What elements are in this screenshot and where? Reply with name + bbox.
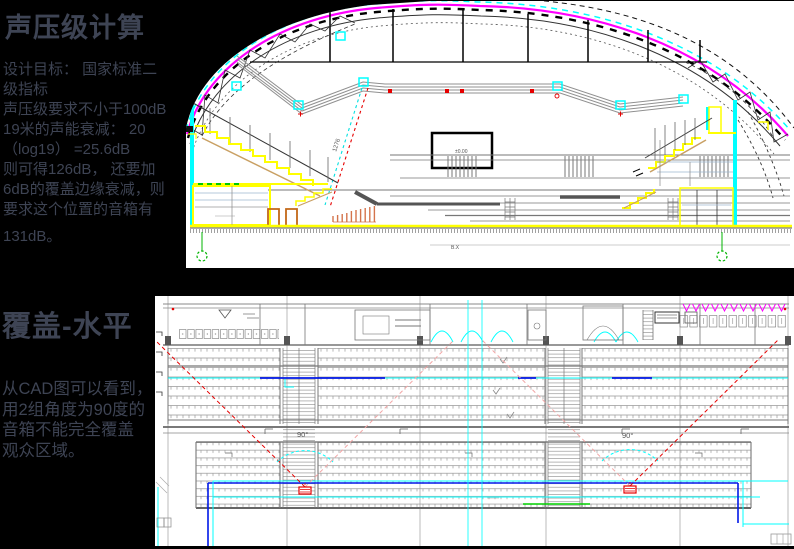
section-title-spl: 声压级计算	[5, 6, 145, 45]
lower-seating	[196, 442, 751, 508]
upper-seating	[168, 348, 788, 424]
fixture-row-right	[679, 315, 787, 328]
scoreboard-label: ±0.00	[455, 149, 468, 155]
left-angle-label: 90°	[297, 430, 308, 439]
spl-body-end: 131dB。	[3, 227, 203, 247]
cross-section-svg: 1276 ±0.00	[160, 0, 794, 268]
ground-note-label: B.X	[451, 245, 460, 251]
right-angle-label: 90°	[622, 431, 633, 440]
section-body-coverage: 从CAD图可以看到， 用2组角度为90度的 音箱不能完全覆盖 观众区域。	[2, 379, 187, 461]
cross-section-drawing: 1276 ±0.00	[160, 0, 794, 268]
plan-view-svg: 90° 90°	[155, 296, 794, 546]
stair-top-right	[643, 310, 653, 340]
section-body-spl: 设计目标： 国家标准二 级指标 声压级要求不小于100dB 19米的声能衰减： …	[3, 60, 203, 247]
section-title-coverage: 覆盖-水平	[2, 303, 133, 345]
slide: 声压级计算 设计目标： 国家标准二 级指标 声压级要求不小于100dB 19米的…	[0, 0, 794, 549]
plan-view-drawing: 90° 90°	[155, 296, 794, 546]
red-mark-right	[784, 308, 787, 311]
text-column: 声压级计算 设计目标： 国家标准二 级指标 声压级要求不小于100dB 19米的…	[0, 0, 200, 549]
scoreboard: ±0.00	[432, 133, 492, 168]
spl-body-text: 设计目标： 国家标准二 级指标 声压级要求不小于100dB 19米的声能衰减： …	[3, 61, 166, 218]
